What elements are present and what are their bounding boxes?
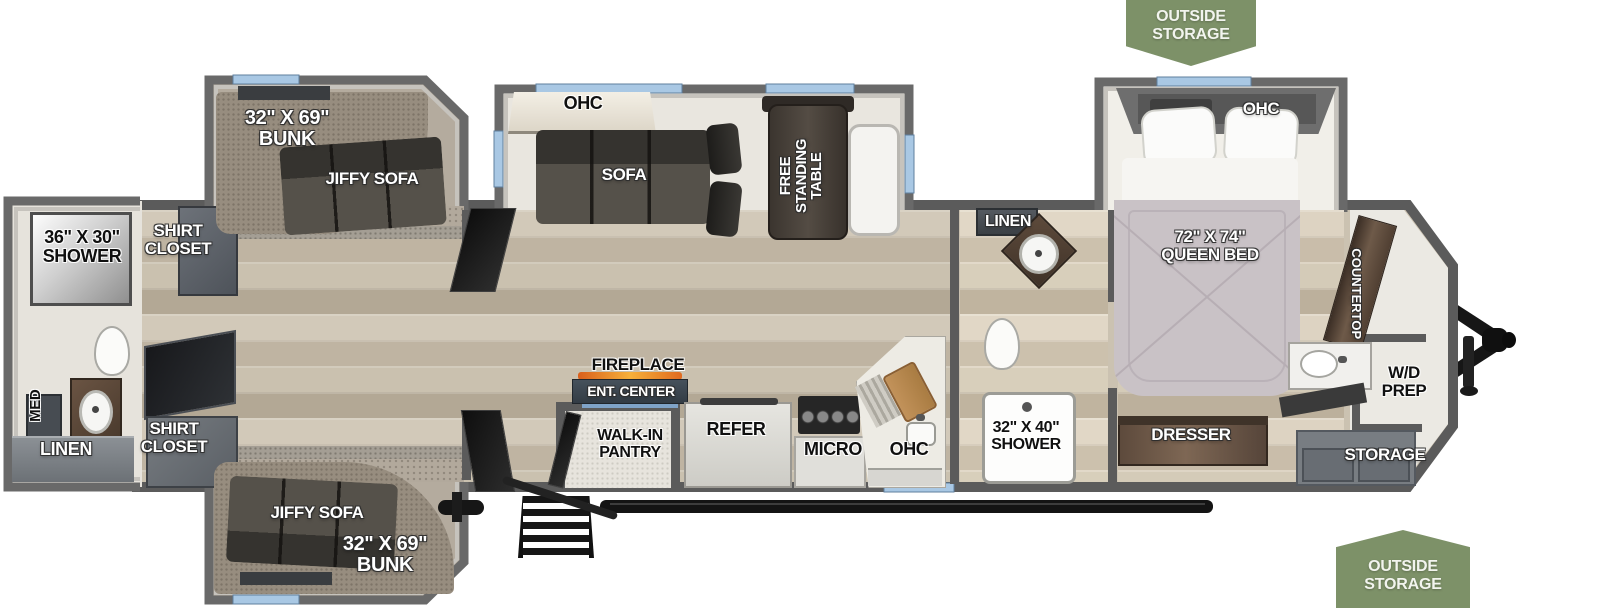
drain [92, 406, 99, 413]
ent-center-trim [582, 404, 678, 408]
label-shirt-closet-top: SHIRT CLOSET [136, 222, 220, 257]
drain [1035, 250, 1042, 257]
bench-seat [848, 124, 900, 236]
label-queen-bed: 72" X 74" QUEEN BED [1140, 228, 1280, 263]
label-med: MED [28, 378, 44, 434]
label-fireplace: FIREPLACE [578, 356, 698, 374]
label-ohc-kitchen: OHC [878, 440, 940, 459]
shower-drain [1022, 402, 1032, 412]
bed-sheet [1122, 158, 1298, 206]
rail-post [452, 492, 462, 522]
label-ohc-sofa: OHC [548, 94, 618, 113]
refer-handles [700, 398, 778, 405]
floorplan: OUTSIDE STORAGE OUTSIDE STORAGE 36" X 30… [0, 0, 1600, 614]
hitch [1450, 300, 1516, 396]
label-linen-left: LINEN [28, 440, 104, 459]
refrigerator [684, 402, 792, 488]
label-ent-center: ENT. CENTER [580, 384, 682, 399]
label-free-standing-table: FREE STANDING TABLE [778, 116, 838, 236]
toilet [94, 326, 130, 376]
toilet-mid [984, 318, 1020, 370]
kitchen-base-cabinet [868, 468, 942, 486]
label-walk-in-pantry: WALK-IN PANTRY [580, 428, 680, 461]
label-shower-left: 36" X 30" SHOWER [24, 228, 140, 265]
label-shirt-closet-bottom: SHIRT CLOSET [132, 420, 216, 455]
faucet [1338, 356, 1347, 363]
label-jiffy-sofa-top: JIFFY SOFA [312, 170, 432, 188]
front-sink [1300, 350, 1338, 378]
stove [798, 396, 860, 434]
wall-bath-left [950, 210, 959, 484]
bunkroom-bottom-threshold [213, 446, 464, 459]
label-sofa: SOFA [588, 166, 660, 184]
outside-storage-banner-bottom-label: OUTSIDE STORAGE [1364, 558, 1441, 595]
label-countertop: COUNTERTOP [1349, 229, 1363, 359]
awning-bar [600, 500, 1213, 513]
bunk-shelf-top [238, 86, 330, 100]
label-refer: REFER [698, 420, 774, 439]
label-micro: MICRO [798, 440, 868, 459]
label-wd-prep: W/D PREP [1372, 364, 1436, 399]
chair [705, 180, 742, 237]
dresser-top [1118, 416, 1268, 425]
label-dresser: DRESSER [1132, 426, 1250, 444]
label-ohc-bedroom: OHC [1228, 100, 1294, 118]
label-linen-mid: LINEN [980, 214, 1036, 231]
outside-storage-banner-top-label: OUTSIDE STORAGE [1152, 8, 1229, 45]
label-jiffy-sofa-bottom: JIFFY SOFA [262, 504, 372, 522]
label-bunk-top: 32" X 69" BUNK [232, 108, 342, 150]
faucet [916, 414, 925, 421]
label-storage: STORAGE [1326, 446, 1444, 464]
wall-bath-right [1108, 388, 1117, 484]
bunk-shelf-bottom [240, 572, 332, 585]
chair [705, 122, 742, 175]
label-bunk-bottom: 32" X 69" BUNK [330, 534, 440, 576]
label-shower-mid: 32" X 40" SHOWER [974, 420, 1078, 453]
